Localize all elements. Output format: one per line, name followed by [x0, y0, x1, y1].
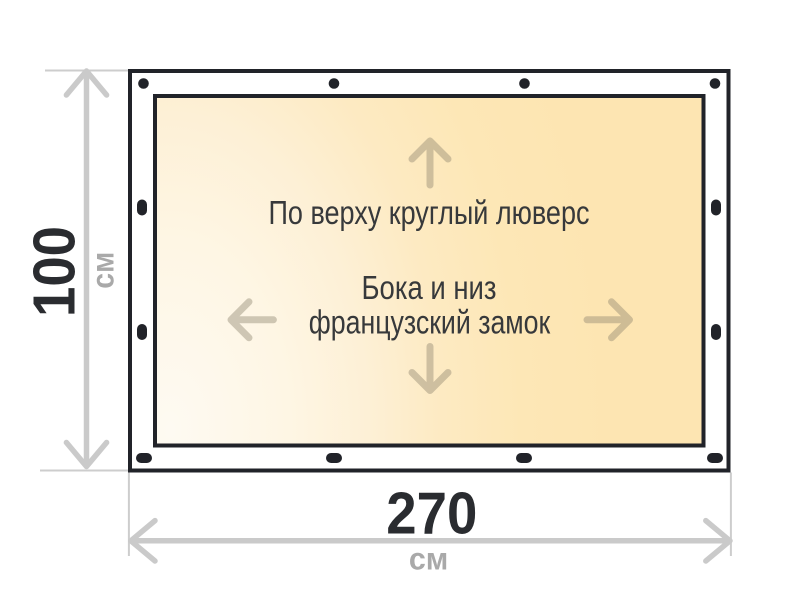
svg-text:Бока и низ: Бока и низ	[362, 269, 497, 306]
svg-text:По верху круглый люверс: По верху круглый люверс	[269, 194, 590, 231]
svg-text:см: см	[409, 541, 449, 577]
svg-text:французский замок: французский замок	[309, 303, 551, 340]
svg-text:100: 100	[21, 226, 87, 317]
svg-text:см: см	[84, 252, 120, 289]
svg-text:270: 270	[386, 481, 477, 547]
